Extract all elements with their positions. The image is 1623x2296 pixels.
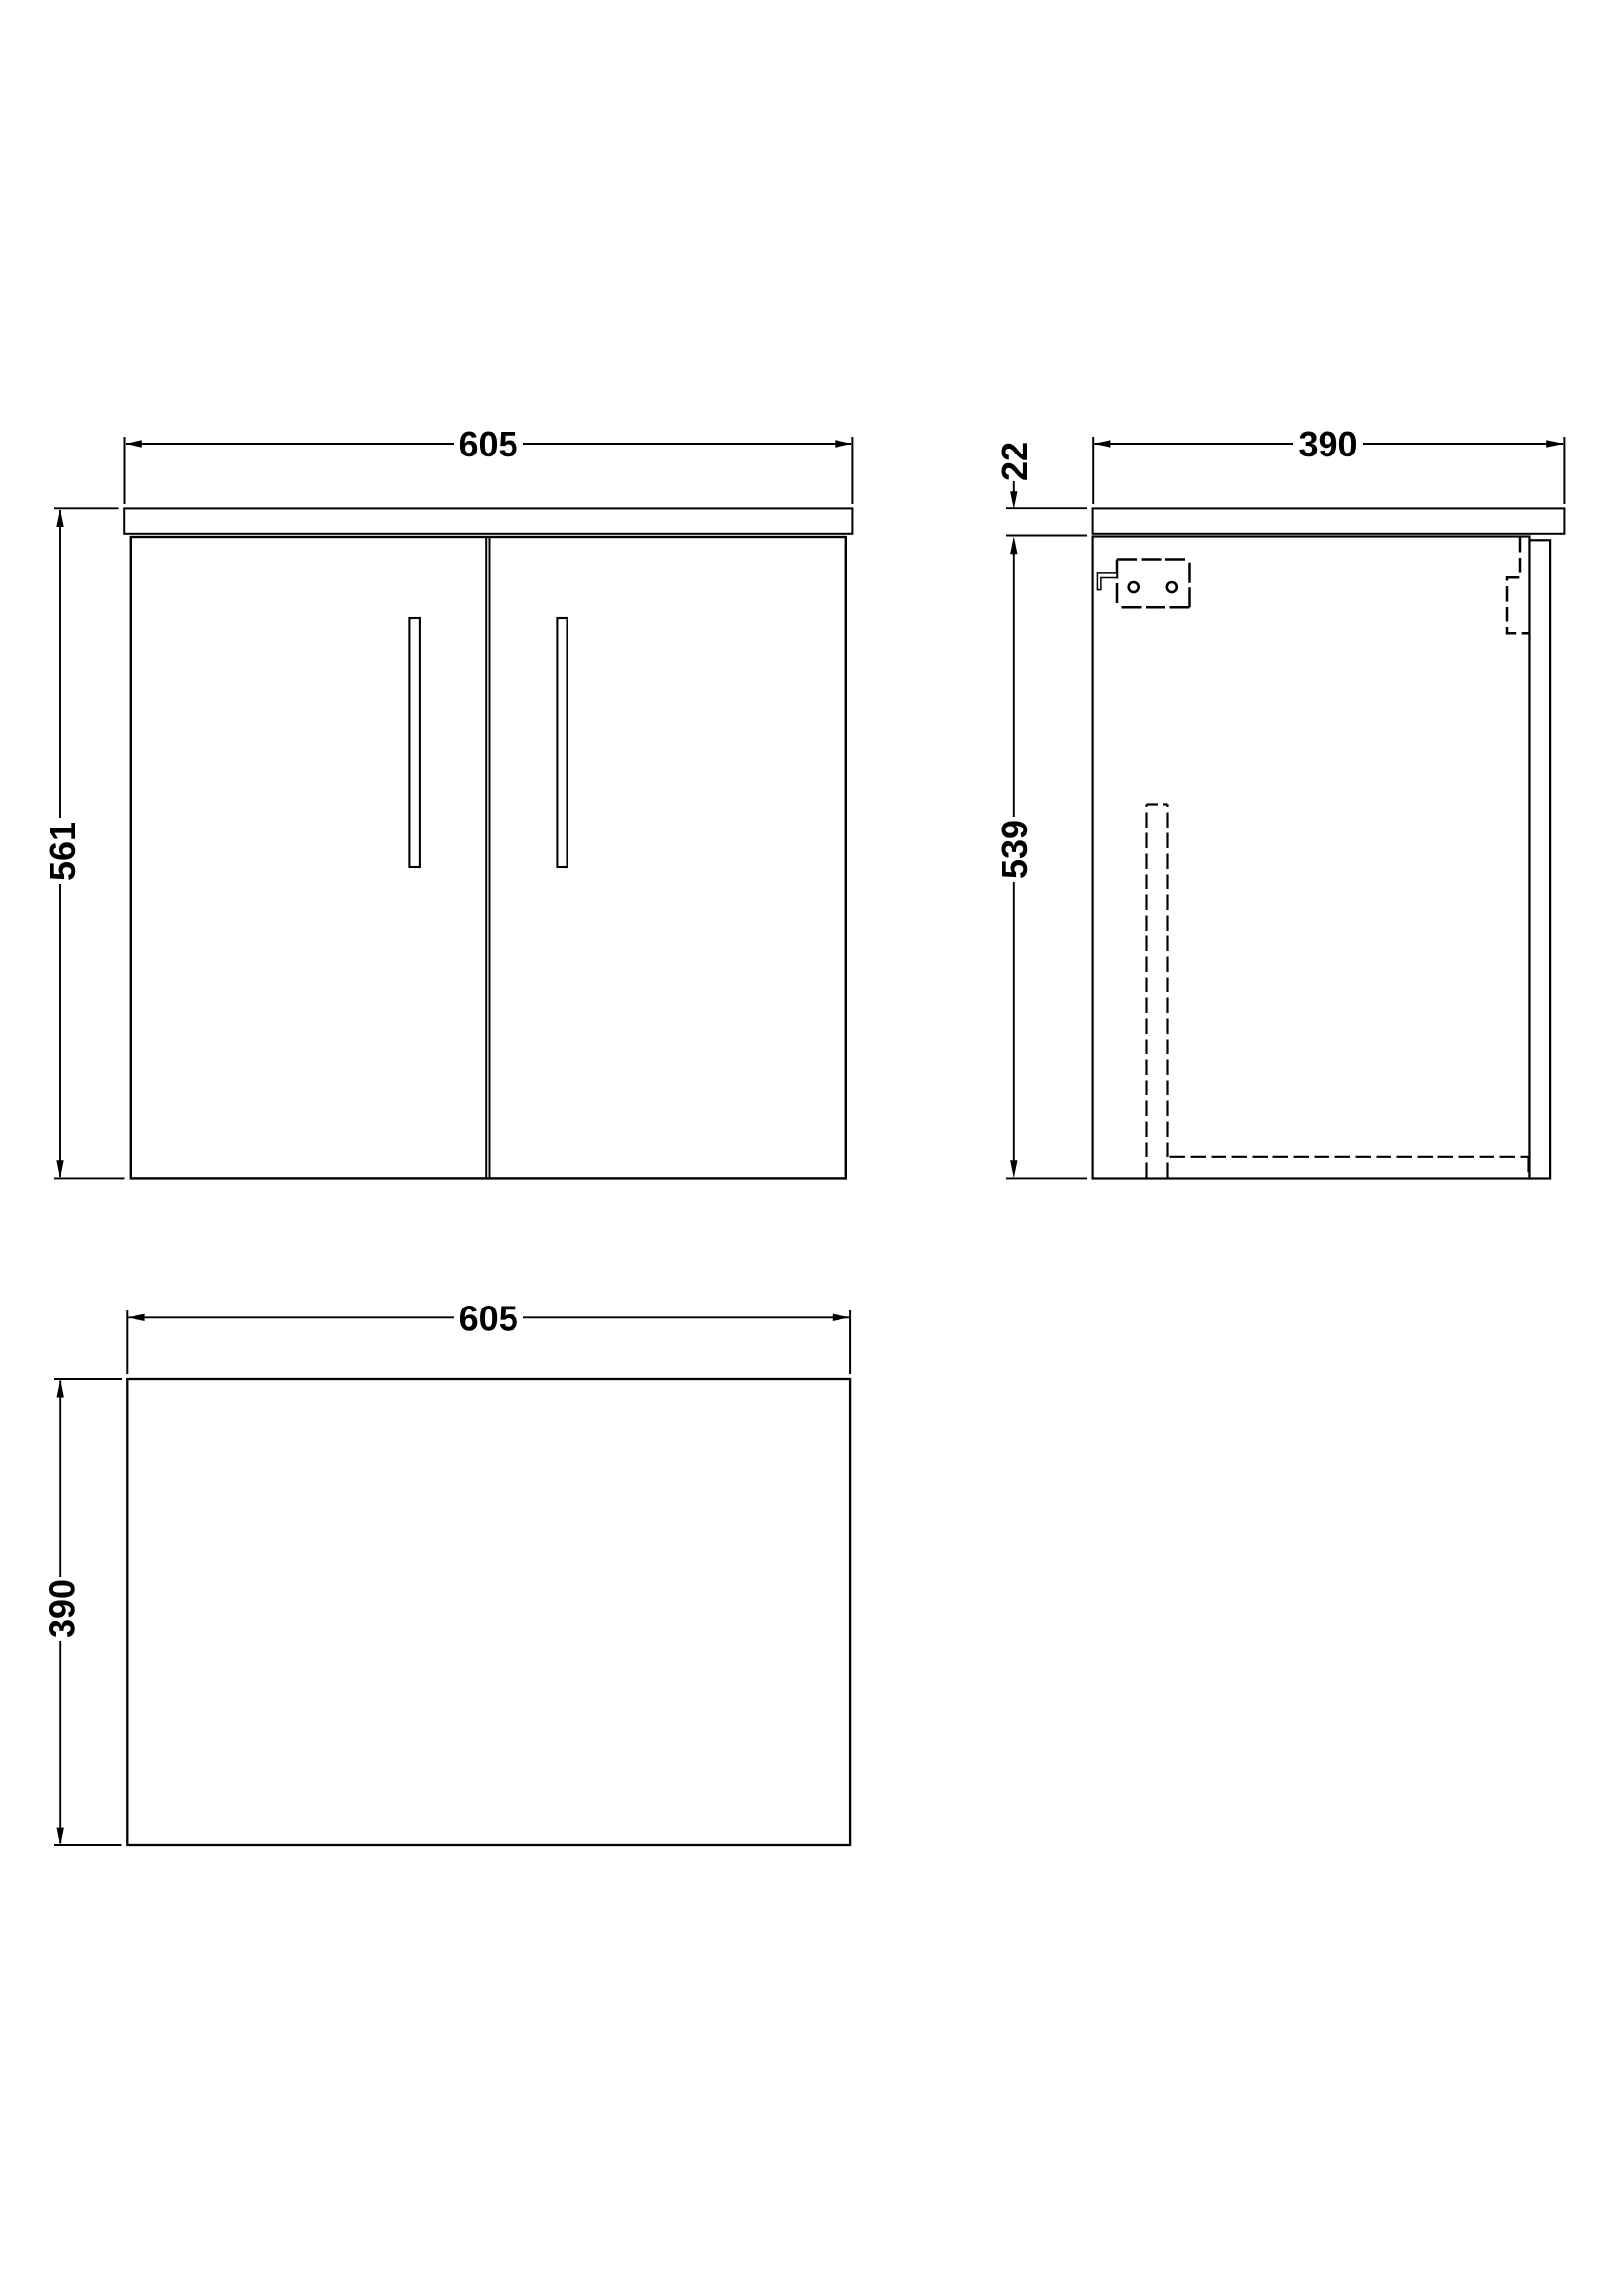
svg-text:539: 539 (995, 820, 1035, 879)
svg-text:390: 390 (1298, 424, 1357, 464)
svg-text:390: 390 (42, 1579, 82, 1638)
svg-text:605: 605 (460, 1299, 518, 1339)
svg-text:561: 561 (42, 822, 82, 881)
svg-text:22: 22 (995, 442, 1035, 481)
svg-text:605: 605 (459, 424, 517, 464)
